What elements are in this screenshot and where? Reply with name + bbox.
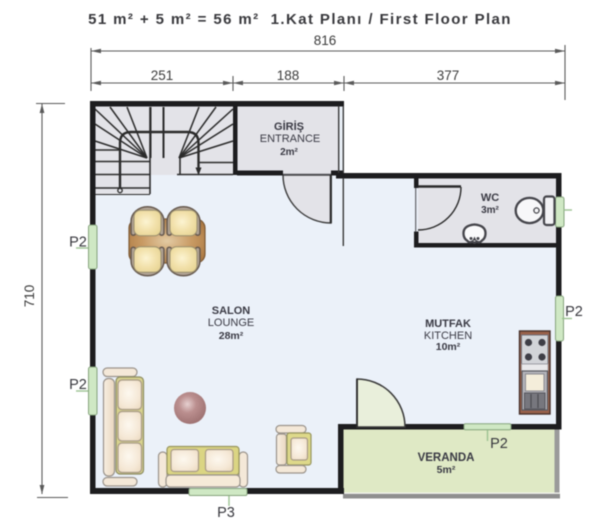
svg-text:710: 710 <box>22 285 37 308</box>
svg-text:P2: P2 <box>490 436 508 452</box>
svg-text:10m²: 10m² <box>436 341 461 353</box>
svg-text:VERANDA: VERANDA <box>418 452 475 464</box>
svg-text:3m²: 3m² <box>481 205 499 216</box>
svg-text:P2: P2 <box>565 304 583 320</box>
svg-text:MUTFAK: MUTFAK <box>425 318 471 330</box>
svg-text:WC: WC <box>481 192 499 204</box>
svg-text:377: 377 <box>437 68 460 83</box>
svg-text:5m²: 5m² <box>437 464 456 476</box>
svg-text:P2: P2 <box>69 235 87 251</box>
svg-text:251: 251 <box>151 68 174 83</box>
svg-text:188: 188 <box>277 68 300 83</box>
svg-text:SALON: SALON <box>212 305 251 317</box>
svg-text:GİRİŞ: GİRİŞ <box>274 120 304 133</box>
svg-text:2m²: 2m² <box>280 147 298 158</box>
svg-text:LOUNGE: LOUNGE <box>208 317 254 329</box>
svg-text:ENTRANCE: ENTRANCE <box>260 133 321 145</box>
svg-text:51 m² + 5 m² = 56 m² 1.Kat Pl: 51 m² + 5 m² = 56 m² 1.Kat Planı / First… <box>88 11 512 28</box>
svg-text:816: 816 <box>314 33 337 48</box>
svg-text:28m²: 28m² <box>219 330 244 342</box>
svg-text:P2: P2 <box>69 377 87 393</box>
svg-text:P3: P3 <box>217 505 235 521</box>
